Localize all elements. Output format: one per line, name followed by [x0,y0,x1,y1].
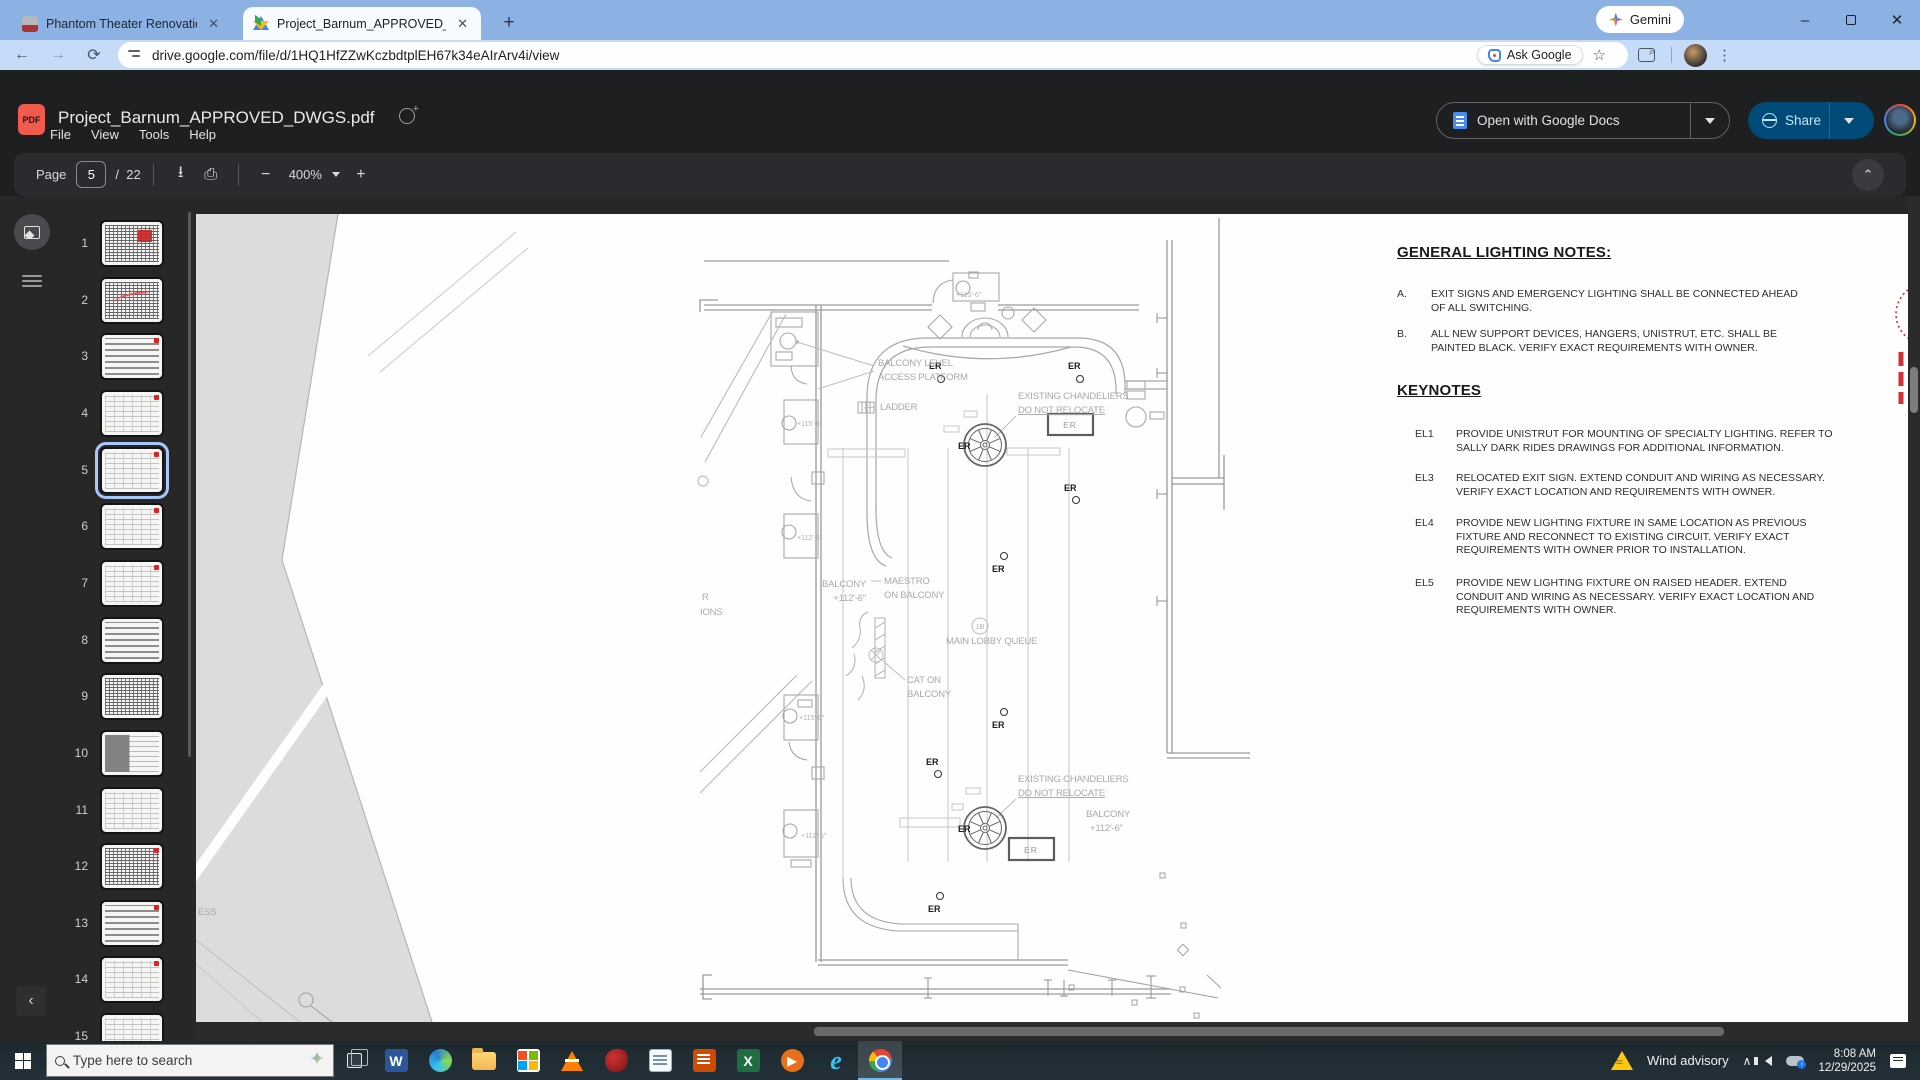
folder-icon [472,1052,496,1070]
notepad-icon [649,1049,672,1072]
page-thumbnail-13[interactable] [100,900,164,947]
svg-text:ACCESS PLATFORM: ACCESS PLATFORM [878,372,968,383]
notifications-icon[interactable] [1890,1054,1906,1068]
page-thumbnail-8[interactable] [100,617,164,664]
svg-text:ER: ER [1064,483,1077,493]
close-window-button[interactable]: ✕ [1874,0,1920,40]
page-number-input[interactable] [76,161,106,188]
task-view-button[interactable] [334,1041,374,1080]
gemini-button[interactable]: Gemini [1596,6,1684,33]
svg-text:ESS: ESS [198,907,216,918]
svg-text:BALCONY: BALCONY [907,689,952,700]
page-thumbnail-14[interactable] [100,956,164,1003]
chrome-icon [869,1049,892,1072]
taskbar-wordpad[interactable] [682,1041,726,1080]
svg-text:BALCONY: BALCONY [822,579,867,590]
red-stamp [1896,265,1908,404]
document-title: Project_Barnum_APPROVED_DWGS.pdf [58,108,375,128]
svg-text:ER: ER [928,904,941,914]
taskbar-media-player[interactable]: ▶ [770,1041,814,1080]
svg-text:+115'-6": +115'-6" [797,421,823,428]
svg-text:DO NOT RELOCATE: DO NOT RELOCATE [1018,405,1105,416]
taskbar-word[interactable]: W [374,1041,418,1080]
svg-text:R: R [702,592,709,603]
horizontal-scrollbar-thumb[interactable] [814,1027,1724,1036]
bookmark-star-icon[interactable]: ☆ [1593,46,1606,64]
pdf-toolbar: Page / 22 ⭳ ⎙ − 400% + ⌃ [14,153,1906,196]
share-dropdown-icon[interactable] [1844,118,1854,124]
volume-icon[interactable] [1765,1056,1772,1066]
shared-file-icon [399,108,415,124]
keynotes-heading: KEYNOTES [1397,382,1481,399]
svg-text:+112'-6": +112'-6" [801,833,827,840]
pdf-file-icon: PDF [18,104,45,135]
svg-text:EXISTING CHANDELIERS: EXISTING CHANDELIERS [1018,774,1129,785]
red-app-icon [605,1049,628,1072]
open-with-dropdown-icon[interactable] [1705,118,1715,124]
taskbar-chrome-active[interactable] [858,1041,902,1080]
windows-taskbar: Type here to search ✦ W X ▶ e Wind advis… [0,1041,1920,1080]
maximize-button[interactable] [1828,0,1874,40]
page-thumbnail-9[interactable] [100,673,164,720]
google-lens-icon [1488,49,1501,62]
svg-text:ER: ER [958,441,971,451]
page-thumbnail-12[interactable] [100,843,164,890]
thumbnail-sidebar: 1 2 3 4 5 6 7 8 9 10 11 12 13 14 15 ‹ [0,196,196,1041]
svg-text:ER: ER [958,824,971,834]
date: 12/29/2025 [1818,1061,1876,1075]
svg-text:ER: ER [992,720,1005,730]
toolbar-divider [1671,47,1672,63]
svg-text:+115'-6": +115'-6" [799,715,825,722]
pdf-viewer-body: 1 2 3 4 5 6 7 8 9 10 11 12 13 14 15 ‹ [0,196,1920,1041]
taskbar-file-explorer[interactable] [462,1041,506,1080]
svg-text:1B: 1B [976,624,985,631]
tab-close-icon[interactable]: ✕ [205,16,222,32]
taskbar-edge[interactable] [418,1041,462,1080]
weather-alert-text[interactable]: Wind advisory [1647,1053,1729,1068]
forward-button[interactable]: → [44,41,72,69]
url-text: drive.google.com/file/d/1HQ1HfZZwKczbdtp… [152,48,1477,63]
time: 8:08 AM [1818,1047,1876,1061]
browser-titlebar: Phantom Theater Renovation Pl ✕ Project_… [0,0,1920,40]
svg-text:+112'-6": +112'-6" [833,593,866,604]
page-label: Page [36,167,66,182]
account-avatar[interactable] [1884,104,1916,136]
edge-icon [429,1049,452,1072]
menu-file[interactable]: File [50,127,71,142]
taskbar-internet-explorer[interactable]: e [814,1041,858,1080]
vlc-cone-icon [561,1051,583,1071]
share-visibility-icon [1762,113,1777,128]
taskbar-notepad[interactable] [638,1041,682,1080]
page-thumbnail-10[interactable] [100,730,164,777]
taskbar-excel[interactable]: X [726,1041,770,1080]
collapse-header-button[interactable]: ⌃ [1852,159,1884,191]
page-thumbnail-2[interactable] [100,277,164,324]
address-bar[interactable]: drive.google.com/file/d/1HQ1HfZZwKczbdtp… [118,42,1628,68]
new-tab-button[interactable]: + [496,10,522,36]
ask-google-button[interactable]: Ask Google [1477,45,1583,65]
svg-text:+115'-6": +115'-6" [956,292,982,299]
page-thumbnail-7[interactable] [100,560,164,607]
svg-text:BALCONY LEVEL: BALCONY LEVEL [878,358,953,369]
svg-text:LADDER: LADDER [880,402,918,413]
taskbar-app-red[interactable] [594,1041,638,1080]
notes-heading: GENERAL LIGHTING NOTES: [1397,244,1877,261]
svg-text:ER: ER [926,757,939,767]
pdf-page: ER ER ER ER ER ER ER ER ER ER ER [196,214,1908,1022]
drive-favicon-icon [253,16,269,32]
copilot-sparkle-icon: ✦ [309,1048,325,1071]
back-button[interactable]: ← [8,41,36,69]
store-icon [517,1049,540,1072]
svg-text:ON BALCONY: ON BALCONY [884,590,945,601]
windows-logo-icon [15,1053,31,1069]
svg-text:MAIN LOBBY QUEUE: MAIN LOBBY QUEUE [946,636,1037,647]
browser-profile-avatar[interactable] [1684,44,1707,67]
media-player-icon: ▶ [781,1049,804,1072]
general-lighting-notes: GENERAL LIGHTING NOTES: A. EXIT SIGNS AN… [1397,244,1877,261]
svg-text:BALCONY: BALCONY [1086,809,1131,820]
svg-text:ER: ER [992,564,1005,574]
onedrive-icon[interactable] [1786,1056,1804,1066]
google-docs-icon [1453,112,1467,129]
document-icon [693,1049,716,1072]
gemini-label: Gemini [1630,12,1671,27]
reload-button[interactable]: ⟳ [80,41,108,69]
svg-text:EXISTING CHANDELIERS: EXISTING CHANDELIERS [1018,391,1129,402]
page-thumbnail-11[interactable] [100,787,164,834]
tab-close-icon[interactable]: ✕ [454,16,471,32]
page-thumbnail-5-selected[interactable] [100,447,164,494]
gemini-sparkle-icon [1609,13,1623,27]
tab-title: Project_Barnum_APPROVED_DW [277,17,446,31]
system-tray: Wind advisory ∧ 8:08 AM 12/29/2025 [1611,1047,1920,1075]
zoom-level[interactable]: 400% [289,167,322,182]
total-pages: 22 [126,167,140,182]
page-thumbnail-3[interactable] [100,333,164,380]
pdf-menubar: File View Tools Help [50,127,216,142]
task-view-icon [347,1053,362,1068]
internet-explorer-icon: e [830,1046,842,1076]
svg-text:ER: ER [1024,845,1038,855]
svg-text:DO NOT RELOCATE: DO NOT RELOCATE [1018,788,1105,799]
svg-text:CAT ON: CAT ON [907,675,941,686]
zoom-out-button[interactable]: − [251,160,281,190]
page-thumbnail-6[interactable] [100,503,164,550]
word-icon: W [385,1049,408,1072]
browser-menu-icon[interactable]: ⋮ [1717,46,1732,64]
menu-tools[interactable]: Tools [139,127,169,142]
search-icon [55,1056,65,1066]
taskbar-store[interactable] [506,1041,550,1080]
start-button[interactable] [0,1041,46,1080]
window-controls: – ✕ [1782,0,1920,40]
taskbar-vlc[interactable] [550,1041,594,1080]
weather-alert-icon[interactable] [1611,1051,1633,1070]
tab-project-barnum[interactable]: Project_Barnum_APPROVED_DW ✕ [243,7,481,40]
excel-icon: X [737,1049,760,1072]
vertical-scrollbar[interactable] [1908,196,1920,1041]
pdf-viewer-header: PDF Project_Barnum_APPROVED_DWGS.pdf Fil… [0,70,1920,196]
tab-phantom-theater[interactable]: Phantom Theater Renovation Pl ✕ [12,7,232,40]
site-settings-icon[interactable] [128,47,144,63]
tab-title: Phantom Theater Renovation Pl [46,17,197,31]
print-icon[interactable]: ⎙ [196,160,226,190]
svg-text:IONS: IONS [700,607,722,618]
page-thumbnail-15[interactable] [100,1013,164,1041]
theater-favicon-icon [22,16,38,32]
download-icon[interactable]: ⭳ [166,160,196,190]
collapse-sidebar-button[interactable]: ‹ [16,986,46,1016]
taskbar-clock[interactable]: 8:08 AM 12/29/2025 [1818,1047,1876,1075]
open-with-google-docs-button[interactable]: Open with Google Docs [1436,102,1730,139]
page-thumbnail-4[interactable] [100,390,164,437]
side-panel-search-icon[interactable] [1638,48,1655,62]
zoom-dropdown-icon[interactable] [332,172,340,177]
vertical-scrollbar-thumb[interactable] [1910,367,1918,413]
minimize-button[interactable]: – [1782,0,1828,40]
page-thumbnail-1[interactable] [100,220,164,267]
browser-navbar: ← → ⟳ drive.google.com/file/d/1HQ1HfZZwK… [0,40,1920,70]
share-button[interactable]: Share [1748,102,1874,139]
hidden-icons-chevron[interactable]: ∧ [1743,1054,1752,1068]
menu-help[interactable]: Help [189,127,216,142]
zoom-in-button[interactable]: + [346,160,376,190]
svg-text:ER: ER [1063,420,1077,430]
svg-text:+112'-6": +112'-6" [797,535,823,542]
svg-text:ER: ER [1068,361,1081,371]
horizontal-scrollbar[interactable] [196,1022,1908,1041]
taskbar-search-input[interactable]: Type here to search ✦ [46,1044,334,1077]
menu-view[interactable]: View [91,127,119,142]
svg-text:+112'-6": +112'-6" [1090,823,1123,834]
svg-text:MAESTRO: MAESTRO [884,576,930,587]
